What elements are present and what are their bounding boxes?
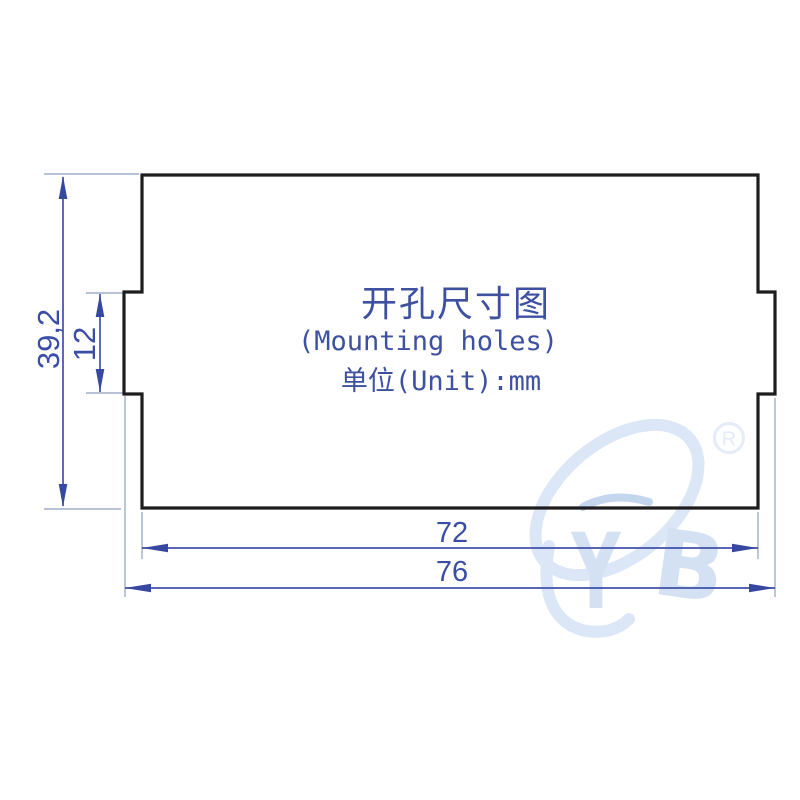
watermark-inner-curl <box>583 498 649 507</box>
label-body-width: 72 <box>436 517 468 549</box>
arrow-right-icon <box>732 544 758 553</box>
label-notch-height: 12 <box>67 327 102 361</box>
arrow-up-icon <box>59 176 68 199</box>
arrow-right-icon <box>749 584 775 593</box>
label-total-width: 76 <box>436 556 468 588</box>
arrow-down-icon <box>96 369 105 392</box>
arrow-down-icon <box>59 484 68 507</box>
diagram-svg: Y B R <box>0 0 800 800</box>
mounting-holes-diagram: Y B R <box>0 0 800 800</box>
arrow-left-icon <box>125 584 151 593</box>
registered-trademark-letter: R <box>722 429 736 451</box>
diagram-unit-note: 单位(Unit):mm <box>341 366 541 397</box>
diagram-title-chinese: 开孔尺寸图 <box>361 284 551 324</box>
diagram-title-english: (Mounting holes) <box>298 326 558 357</box>
arrow-up-icon <box>96 294 105 317</box>
watermark-letter-b: B <box>647 509 731 625</box>
watermark-logo: Y B R <box>508 395 744 633</box>
label-total-height: 39,2 <box>31 309 66 369</box>
watermark-letter-y: Y <box>571 512 622 633</box>
arrow-left-icon <box>142 544 168 553</box>
